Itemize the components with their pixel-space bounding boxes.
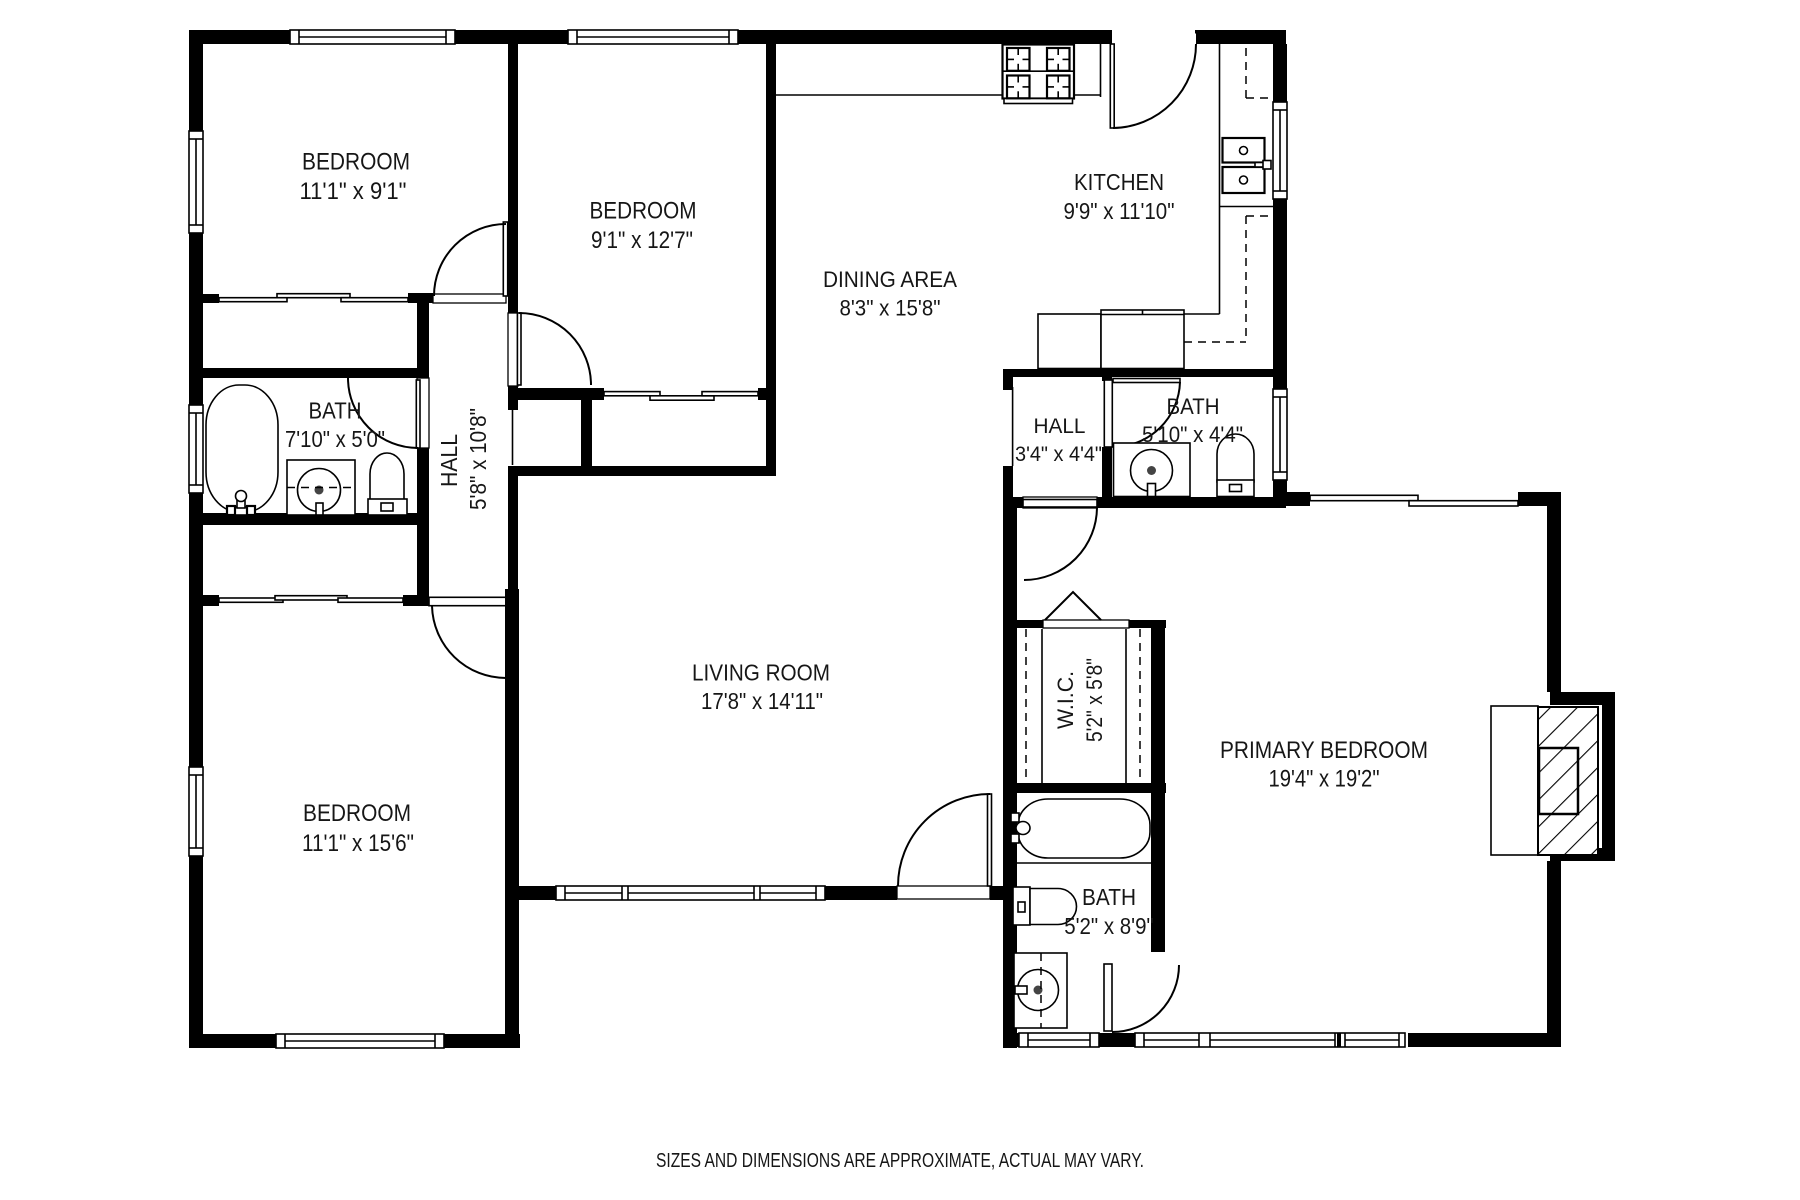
svg-text:LIVING ROOM: LIVING ROOM <box>692 660 830 686</box>
svg-text:9'9" x 11'10": 9'9" x 11'10" <box>1064 198 1175 224</box>
svg-text:BATH: BATH <box>1167 394 1220 419</box>
svg-text:HALL: HALL <box>1034 414 1086 438</box>
svg-text:BEDROOM: BEDROOM <box>302 149 410 176</box>
svg-text:SIZES AND DIMENSIONS ARE APPRO: SIZES AND DIMENSIONS ARE APPROXIMATE, AC… <box>656 1150 1144 1172</box>
svg-text:5'8" x 10'8": 5'8" x 10'8" <box>465 408 491 510</box>
svg-text:9'1" x 12'7": 9'1" x 12'7" <box>591 227 693 254</box>
svg-text:3'4" x 4'4": 3'4" x 4'4" <box>1015 442 1102 466</box>
svg-text:11'1" x 15'6": 11'1" x 15'6" <box>302 830 414 857</box>
svg-text:HALL: HALL <box>436 434 462 487</box>
svg-text:KITCHEN: KITCHEN <box>1074 169 1164 195</box>
svg-text:W.I.C.: W.I.C. <box>1053 671 1078 729</box>
svg-text:5'2" x 5'8": 5'2" x 5'8" <box>1082 658 1107 742</box>
svg-text:5'2" x 8'9": 5'2" x 8'9" <box>1064 913 1154 939</box>
svg-text:DINING AREA: DINING AREA <box>823 267 957 292</box>
svg-text:17'8" x 14'11": 17'8" x 14'11" <box>701 688 823 714</box>
svg-text:5'10" x 4'4": 5'10" x 4'4" <box>1142 422 1243 447</box>
svg-text:PRIMARY BEDROOM: PRIMARY BEDROOM <box>1220 737 1428 764</box>
svg-text:11'1" x 9'1": 11'1" x 9'1" <box>300 178 407 205</box>
svg-text:BEDROOM: BEDROOM <box>303 800 411 827</box>
svg-text:7'10" x 5'0": 7'10" x 5'0" <box>285 426 385 452</box>
svg-text:8'3" x 15'8": 8'3" x 15'8" <box>840 296 941 321</box>
svg-text:19'4" x 19'2": 19'4" x 19'2" <box>1269 766 1380 793</box>
svg-text:BATH: BATH <box>1082 884 1136 910</box>
svg-text:BEDROOM: BEDROOM <box>590 198 697 225</box>
svg-text:BATH: BATH <box>309 398 362 424</box>
